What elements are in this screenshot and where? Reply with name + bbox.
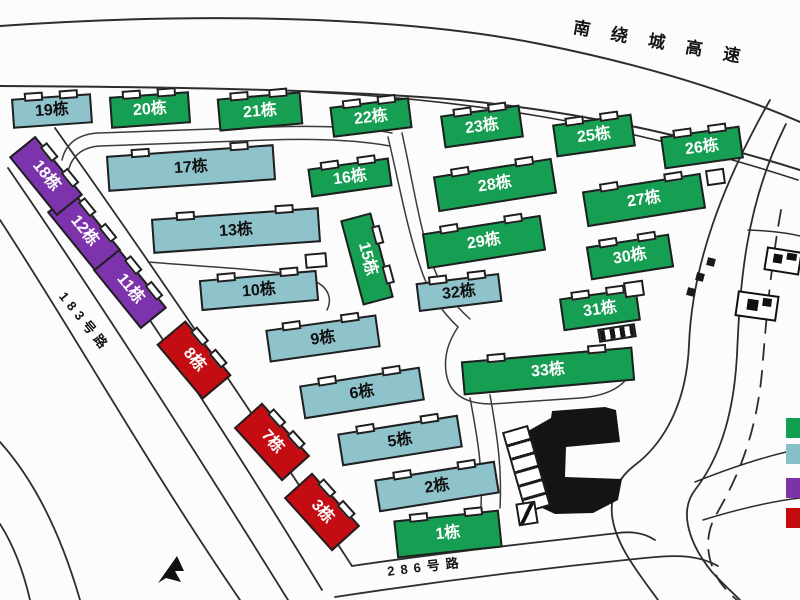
- building-22栋[interactable]: 22栋: [329, 97, 412, 138]
- building-23栋[interactable]: 23栋: [440, 104, 524, 148]
- building-8栋[interactable]: 8栋: [156, 320, 231, 400]
- site-map: 1栋2栋3栋5栋6栋7栋8栋9栋10栋11栋12栋13栋15栋16栋17栋18栋…: [0, 0, 800, 600]
- building-2栋[interactable]: 2栋: [374, 460, 500, 512]
- building-26栋[interactable]: 26栋: [660, 125, 744, 169]
- building-7栋[interactable]: 7栋: [234, 403, 310, 482]
- building-21栋[interactable]: 21栋: [217, 91, 304, 131]
- legend-swatch-purple: [786, 478, 800, 498]
- substation-box-1: [304, 252, 327, 269]
- building-6栋[interactable]: 6栋: [299, 367, 425, 420]
- building-32栋[interactable]: 32栋: [416, 272, 503, 311]
- building-29栋[interactable]: 29栋: [422, 215, 546, 269]
- building-13栋[interactable]: 13栋: [151, 207, 321, 254]
- building-19栋[interactable]: 19栋: [11, 93, 93, 129]
- building-30栋[interactable]: 30栋: [586, 234, 674, 281]
- building-9栋[interactable]: 9栋: [265, 314, 381, 362]
- building-27栋[interactable]: 27栋: [582, 173, 706, 227]
- building-3栋[interactable]: 3栋: [284, 473, 360, 552]
- building-17栋[interactable]: 17栋: [106, 144, 276, 192]
- building-25栋[interactable]: 25栋: [552, 113, 636, 157]
- building-1栋[interactable]: 1栋: [393, 510, 502, 559]
- building-28栋[interactable]: 28栋: [433, 158, 557, 212]
- buildings-layer: 1栋2栋3栋5栋6栋7栋8栋9栋10栋11栋12栋13栋15栋16栋17栋18栋…: [0, 0, 800, 600]
- gate-house: [515, 501, 538, 527]
- legend: [786, 418, 800, 548]
- building-5栋[interactable]: 5栋: [337, 414, 463, 466]
- substation-box-3: [705, 168, 726, 186]
- legend-swatch-red: [786, 508, 800, 528]
- building-33栋[interactable]: 33栋: [461, 347, 635, 396]
- legend-swatch-teal: [786, 444, 800, 464]
- legend-swatch-green: [786, 418, 800, 438]
- substation-box-2: [623, 280, 645, 299]
- building-15栋[interactable]: 15栋: [340, 212, 394, 305]
- building-20栋[interactable]: 20栋: [109, 91, 191, 129]
- building-16栋[interactable]: 16栋: [307, 157, 392, 197]
- building-10栋[interactable]: 10栋: [199, 269, 319, 310]
